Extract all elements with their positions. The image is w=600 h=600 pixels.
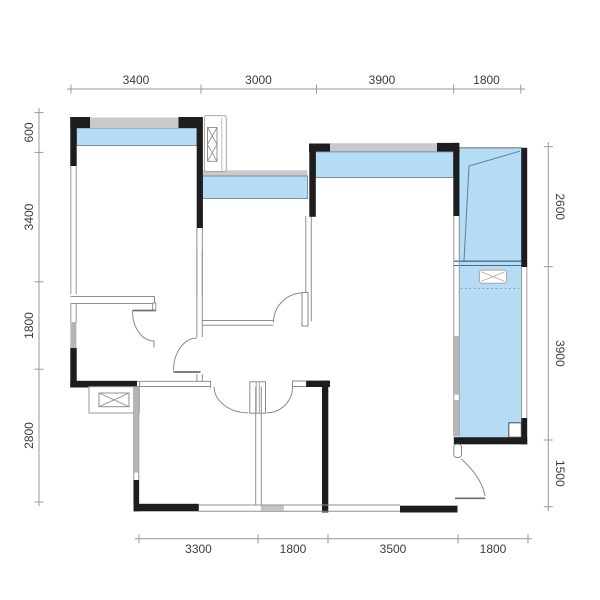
svg-text:3400: 3400 [22, 203, 36, 230]
svg-text:2600: 2600 [553, 193, 567, 220]
svg-text:1800: 1800 [280, 542, 307, 556]
svg-text:1800: 1800 [473, 73, 500, 87]
svg-text:600: 600 [22, 122, 36, 142]
svg-text:3300: 3300 [185, 542, 212, 556]
svg-text:1800: 1800 [22, 312, 36, 339]
svg-text:3500: 3500 [380, 542, 407, 556]
svg-text:1500: 1500 [553, 460, 567, 487]
svg-text:3000: 3000 [245, 73, 272, 87]
svg-text:3400: 3400 [123, 73, 150, 87]
svg-text:2800: 2800 [22, 422, 36, 449]
svg-text:3900: 3900 [553, 340, 567, 367]
svg-text:3900: 3900 [369, 73, 396, 87]
svg-text:1800: 1800 [480, 542, 507, 556]
